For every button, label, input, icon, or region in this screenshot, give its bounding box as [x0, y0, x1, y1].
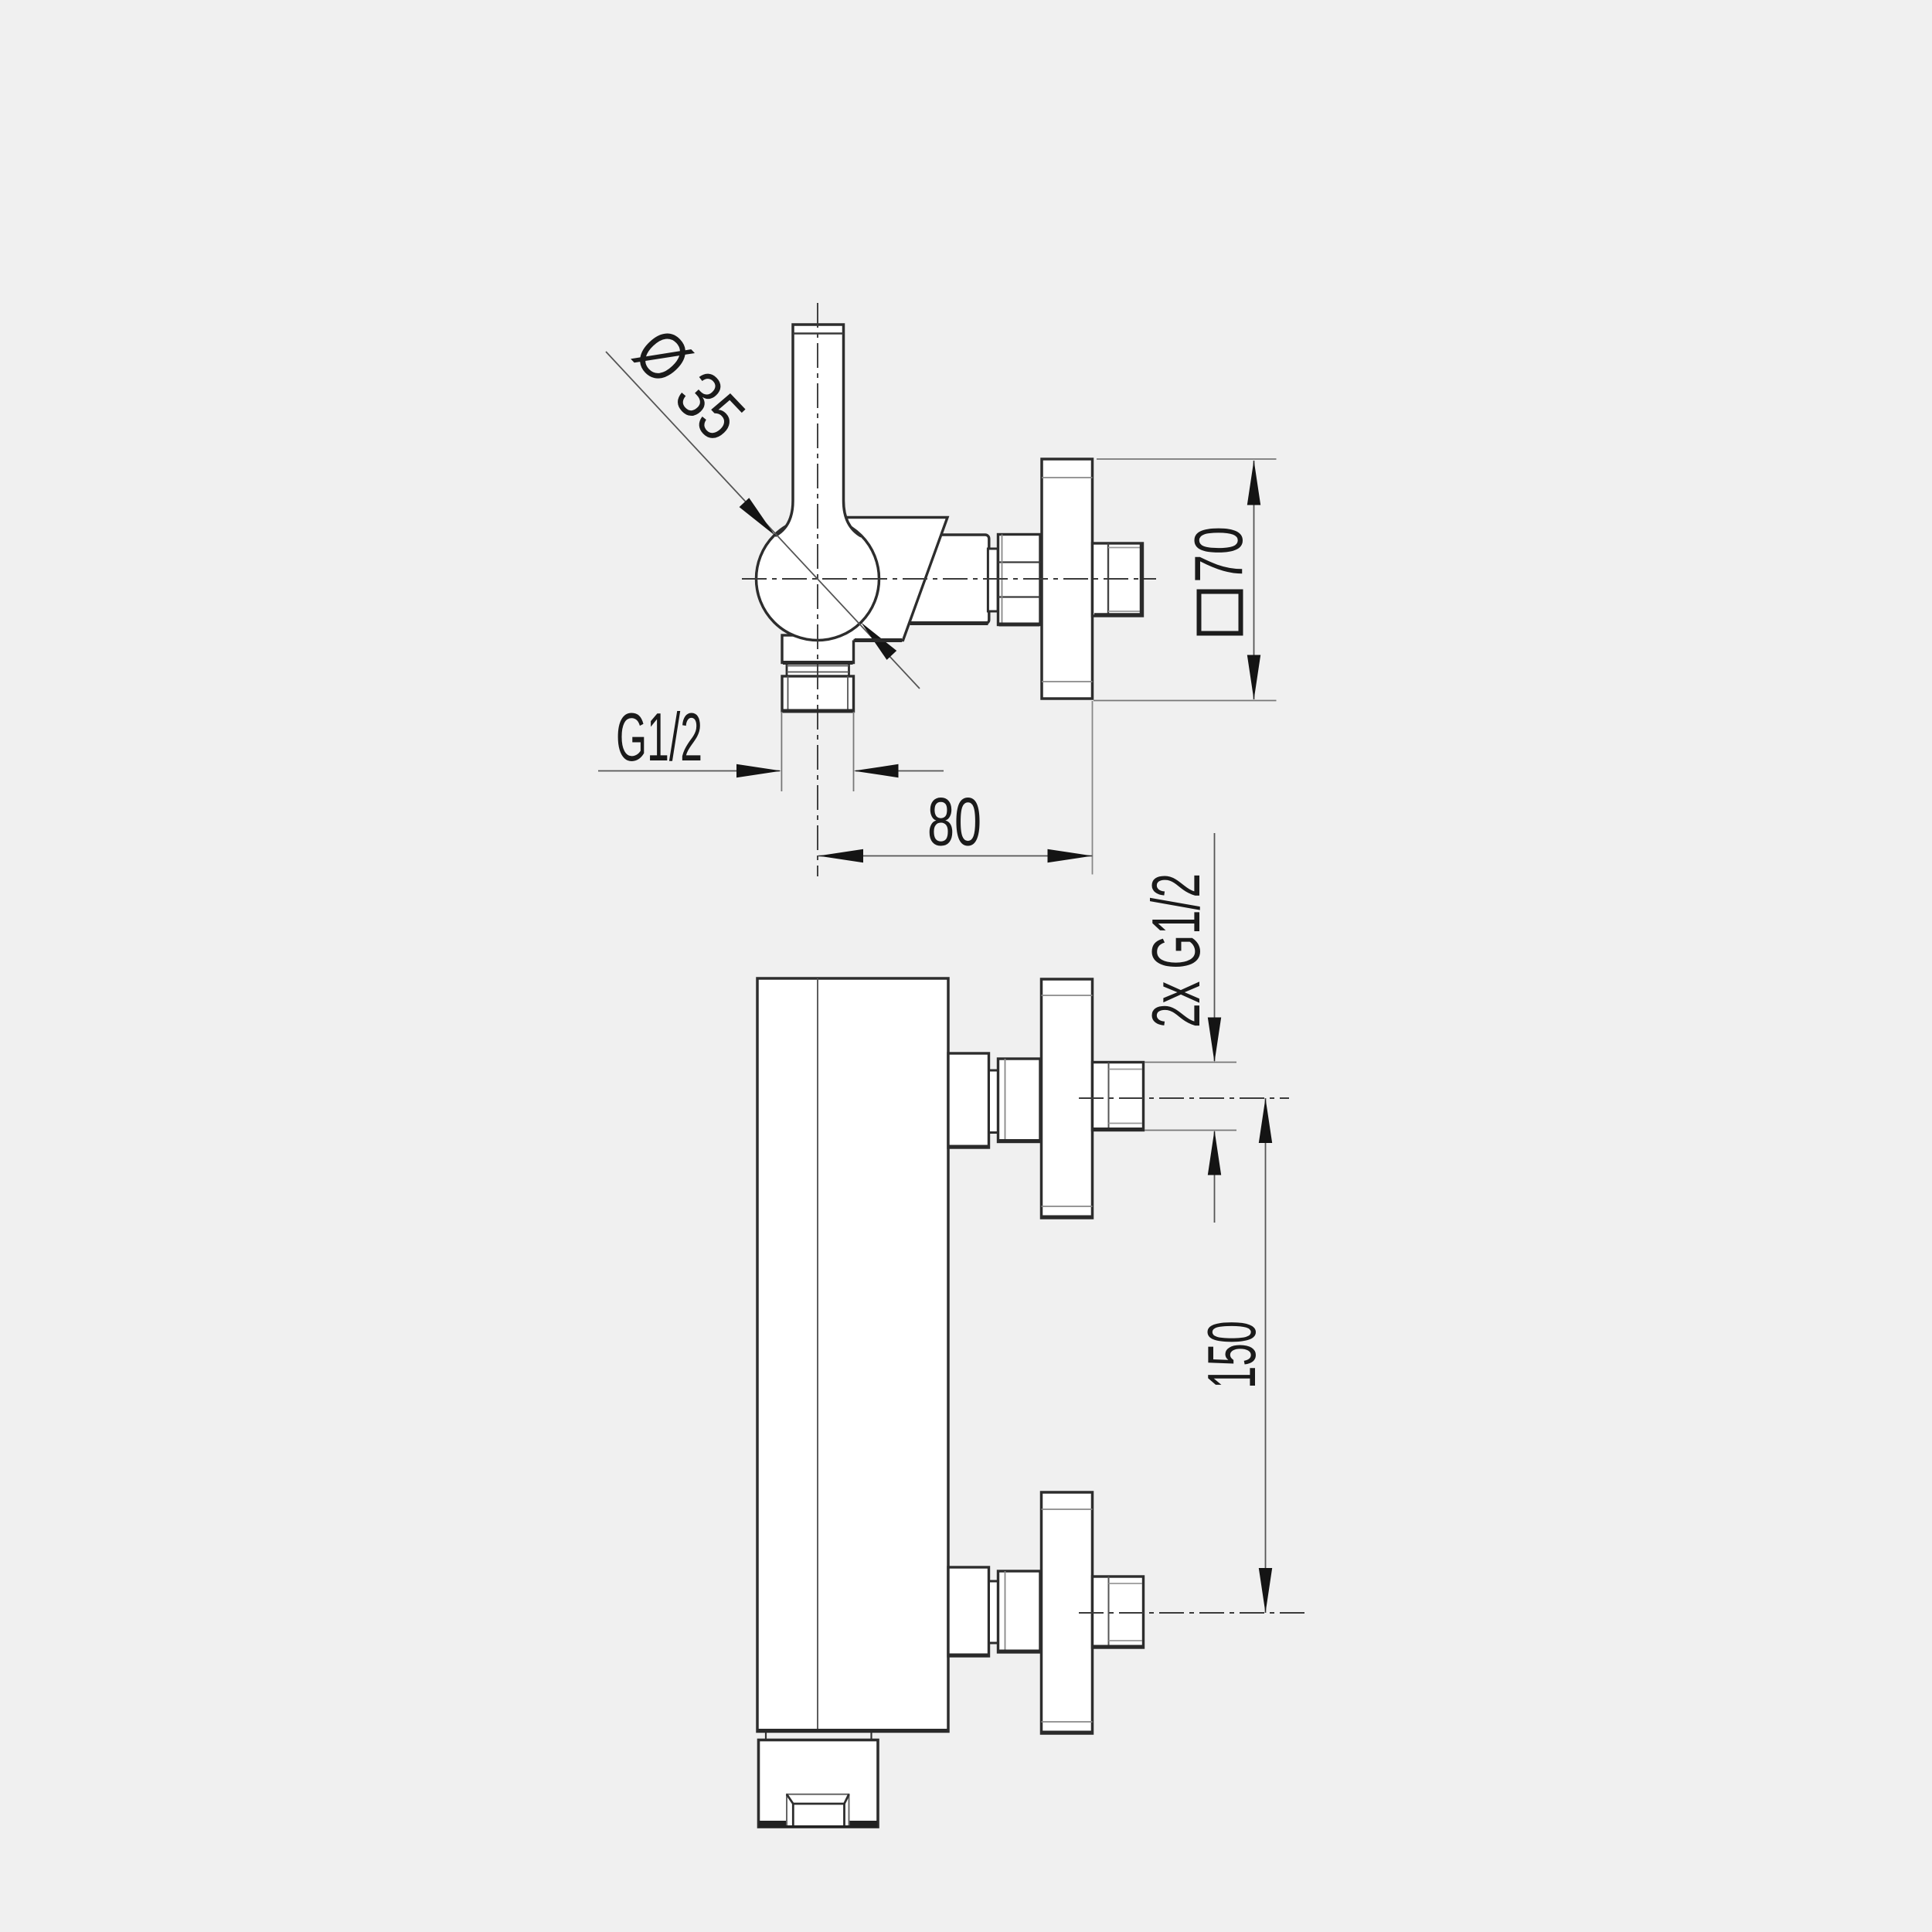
svg-text:2x G1/2: 2x G1/2	[1138, 873, 1214, 1028]
svg-text:G1/2: G1/2	[616, 699, 702, 775]
svg-text:70: 70	[1180, 526, 1257, 583]
svg-text:80: 80	[927, 784, 981, 860]
svg-text:150: 150	[1193, 1321, 1270, 1389]
